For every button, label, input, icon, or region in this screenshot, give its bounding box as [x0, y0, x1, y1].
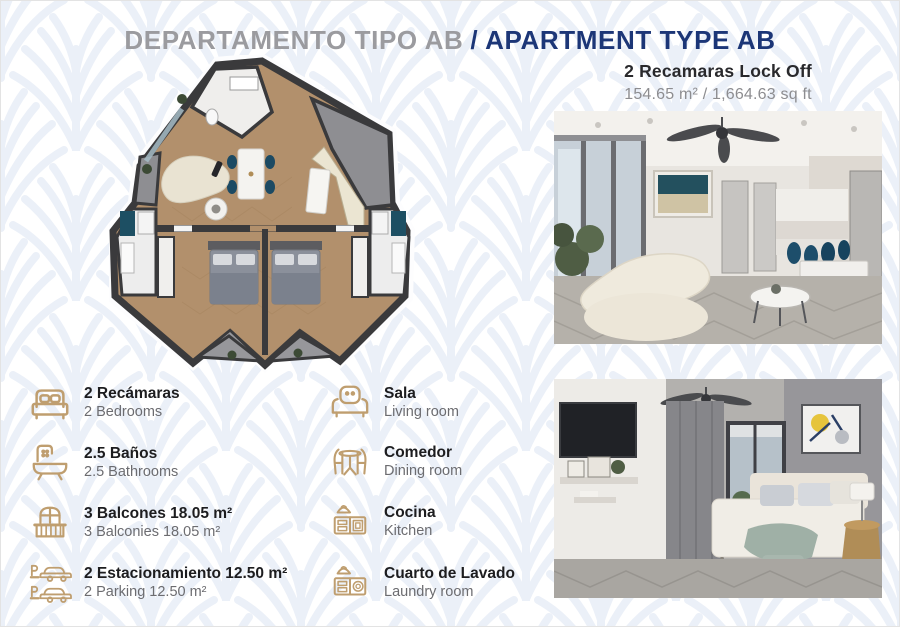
armchair-icon [327, 383, 373, 423]
page-title: DEPARTAMENTO TIPO AB/APARTMENT TYPE AB [1, 25, 899, 56]
feature-label-en: Laundry room [384, 583, 515, 602]
plan-bathroom-left [117, 209, 156, 295]
feature-living-room: Sala Living room [327, 383, 547, 423]
plan-closet-left [158, 237, 174, 297]
title-english: APARTMENT TYPE AB [485, 25, 775, 55]
brochure-page: DEPARTAMENTO TIPO AB/APARTMENT TYPE AB [0, 0, 900, 627]
floor-plan [109, 55, 415, 379]
kitchen-cabinets [776, 189, 848, 255]
living-room-photo [554, 111, 882, 344]
feature-label-es: Cocina [384, 503, 436, 522]
feature-label-es: Sala [384, 384, 459, 403]
feature-label-es: Cuarto de Lavado [384, 564, 515, 583]
feature-dining-room: Comedor Dining room [327, 442, 547, 482]
feature-label-es: 3 Balcones 18.05 m² [84, 504, 232, 523]
feature-list-right: Sala Living room Comedor Dining room [327, 383, 547, 623]
feature-laundry: Cuarto de Lavado Laundry room [327, 562, 547, 604]
feature-label-es: 2 Recámaras [84, 384, 180, 403]
feature-kitchen: Cocina Kitchen [327, 501, 547, 543]
plan-plant [177, 94, 187, 104]
dining-table-icon [327, 442, 373, 482]
plan-bed-right [270, 241, 322, 304]
kitchen-icon [327, 501, 373, 543]
title-separator: / [470, 25, 478, 55]
feature-label-es: Comedor [384, 443, 462, 462]
feature-label-en: Dining room [384, 462, 462, 481]
feature-balconies: 3 Balcones 18.05 m² 3 Balconies 18.05 m² [27, 503, 317, 543]
feature-label-en: 3 Balconies 18.05 m² [84, 523, 232, 542]
feature-bedrooms: 2 Recámaras 2 Bedrooms [27, 383, 317, 423]
unit-info: 2 Recamaras Lock Off 154.65 m² / 1,664.6… [554, 61, 882, 104]
wall-art [654, 171, 712, 217]
balcony-icon [27, 503, 73, 543]
plan-closet-right [352, 237, 368, 297]
feature-label-es: 2 Estacionamiento 12.50 m² [84, 564, 287, 583]
tv [560, 403, 636, 457]
title-spanish: DEPARTAMENTO TIPO AB [124, 25, 463, 55]
unit-area: 154.65 m² / 1,664.63 sq ft [554, 86, 882, 104]
unit-name: 2 Recamaras Lock Off [554, 61, 882, 82]
bedroom-photo [554, 379, 882, 598]
feature-parking: 2 Estacionamiento 12.50 m² 2 Parking 12.… [27, 562, 317, 604]
feature-label-en: Living room [384, 403, 459, 422]
plan-bathroom-right [370, 209, 409, 295]
feature-label-en: 2 Bedrooms [84, 403, 180, 422]
bed-icon [27, 383, 73, 423]
bathtub-icon [27, 442, 73, 484]
feature-label-en: Kitchen [384, 522, 436, 541]
feature-label-en: 2 Parking 12.50 m² [84, 583, 287, 602]
feature-label-es: 2.5 Baños [84, 444, 178, 463]
feature-bathrooms: 2.5 Baños 2.5 Bathrooms [27, 442, 317, 484]
feature-label-en: 2.5 Bathrooms [84, 463, 178, 482]
plan-bed-left [208, 241, 260, 304]
laundry-icon [327, 562, 373, 604]
wall-art [802, 405, 860, 453]
parking-icon [27, 562, 73, 604]
feature-list-left: 2 Recámaras 2 Bedrooms 2.5 Baños 2.5 Bat… [27, 383, 317, 623]
